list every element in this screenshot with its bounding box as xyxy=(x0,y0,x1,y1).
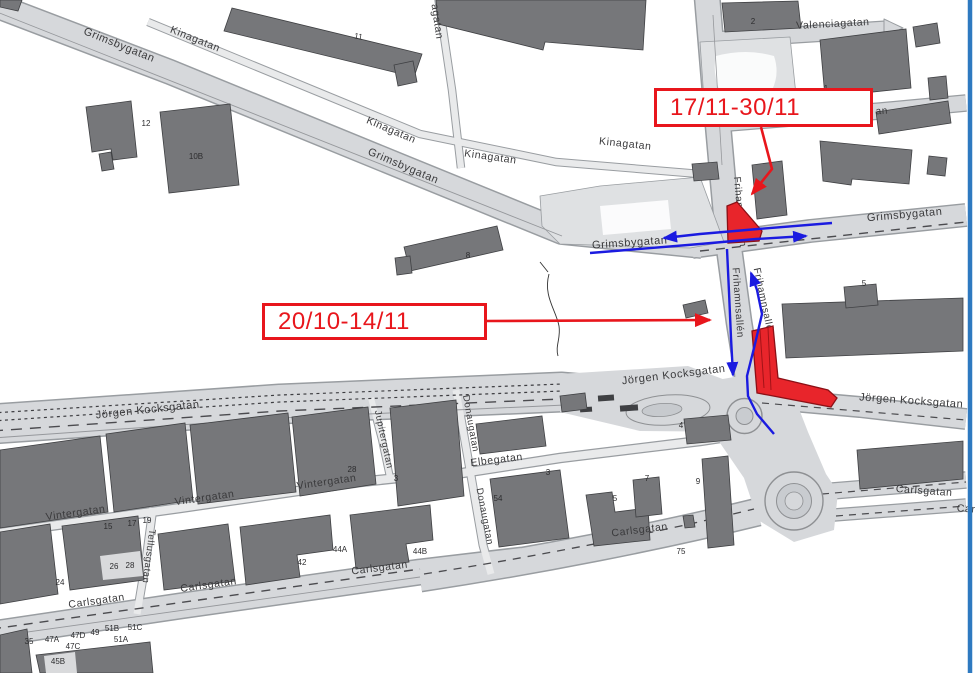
building-number-75-15: 75 xyxy=(677,547,686,556)
building xyxy=(820,141,912,185)
street-label-carlsgatan-e: Carlsgatan xyxy=(895,483,952,499)
date-range-callout-2: 20/10-14/11 xyxy=(262,303,487,340)
date-range-label-1: 17/11-30/11 xyxy=(670,94,800,122)
building xyxy=(476,416,546,454)
street-label-street-frag-an: an xyxy=(875,106,888,118)
building-number-54-11: 54 xyxy=(494,494,503,503)
building xyxy=(683,515,695,528)
building-number-5-12: 5 xyxy=(613,494,618,503)
building xyxy=(928,76,948,100)
building xyxy=(395,256,412,275)
building xyxy=(913,23,940,47)
building-number-12-1: 12 xyxy=(142,119,151,128)
building-number-28-21: 28 xyxy=(126,561,135,570)
building-number-47a-26: 47A xyxy=(45,635,60,644)
building-number-44a-23: 44A xyxy=(333,545,348,554)
building xyxy=(436,0,646,50)
street-label-kinagatan-e: Kinagatan xyxy=(598,135,652,152)
building-number-51b-29: 51B xyxy=(105,624,119,633)
building-number-19-18: 19 xyxy=(143,516,152,525)
building xyxy=(692,162,719,181)
date-range-label-2: 20/10-14/11 xyxy=(278,308,410,336)
building xyxy=(560,393,587,412)
building-number-5-6: 5 xyxy=(862,279,867,288)
building-7 xyxy=(633,477,662,517)
building-number-24-19: 24 xyxy=(56,578,65,587)
building-2 xyxy=(722,1,801,32)
building xyxy=(394,61,417,86)
building-number-17-17: 17 xyxy=(128,519,137,528)
building-number-42-22: 42 xyxy=(298,558,307,567)
plaza-west-patch xyxy=(600,200,671,235)
building-number-9-14: 9 xyxy=(696,477,701,486)
date-range-callout-1: 17/11-30/11 xyxy=(654,88,873,127)
building-number-3-9: 3 xyxy=(394,474,399,483)
roundabout-north xyxy=(727,399,762,434)
building-number-44b-24: 44B xyxy=(413,547,427,556)
building-10b xyxy=(160,104,239,193)
building xyxy=(927,156,947,176)
building-1 xyxy=(820,29,911,97)
boundary-squiggle xyxy=(547,274,559,356)
street-label-kinagatan-nw: Kinagatan xyxy=(168,24,221,55)
building-number-51c-30: 51C xyxy=(128,623,143,632)
building-number-4-7: 4 xyxy=(679,421,684,430)
road-carlsgatan-east2 xyxy=(834,505,966,515)
roundabout-south xyxy=(765,472,823,530)
building xyxy=(0,524,58,604)
building-number-15-16: 15 xyxy=(104,522,113,531)
building-number-2-3: 2 xyxy=(751,17,756,26)
building-number-7-13: 7 xyxy=(645,474,650,483)
building-5-east xyxy=(782,298,963,358)
building-number-51a-32: 51A xyxy=(114,635,129,644)
building-number-45b-33: 45B xyxy=(51,657,65,666)
map-screenshot: GrimsbygatanKinagatanKinagatanGrimsbygat… xyxy=(0,0,976,673)
building-9 xyxy=(702,456,734,548)
building xyxy=(752,161,787,219)
building-number-47d-27: 47D xyxy=(71,631,86,640)
building-54 xyxy=(490,470,569,547)
building-4 xyxy=(684,415,731,444)
building xyxy=(0,629,32,673)
building-8 xyxy=(404,226,503,271)
building xyxy=(99,152,114,171)
building-number-47c-31: 47C xyxy=(66,642,81,651)
building-number-10b-2: 10B xyxy=(189,152,203,161)
street-label-carlsgatan-e-frag: Car xyxy=(956,502,976,515)
building-number-28-8: 28 xyxy=(348,465,357,474)
building-number-8-5: 8 xyxy=(466,251,471,260)
building xyxy=(683,300,708,318)
building-number-49-28: 49 xyxy=(91,628,100,637)
building-3 xyxy=(390,400,464,506)
building-number-35-25: 35 xyxy=(25,637,34,646)
building-12 xyxy=(86,101,137,160)
building-number-3-10: 3 xyxy=(546,468,551,477)
building-number-26-20: 26 xyxy=(110,562,119,571)
building xyxy=(190,413,296,504)
callout-2-arrow xyxy=(487,320,710,321)
